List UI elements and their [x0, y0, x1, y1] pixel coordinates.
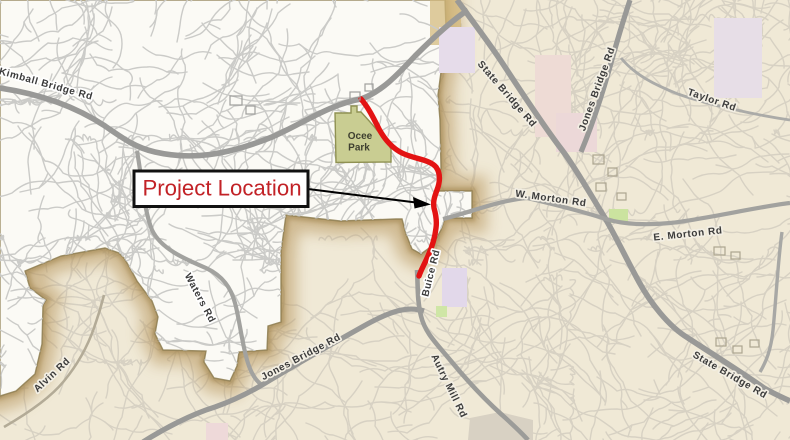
svg-text:Park: Park	[348, 143, 370, 154]
svg-text:Project Location: Project Location	[142, 176, 301, 201]
svg-text:Ocee: Ocee	[348, 131, 373, 142]
